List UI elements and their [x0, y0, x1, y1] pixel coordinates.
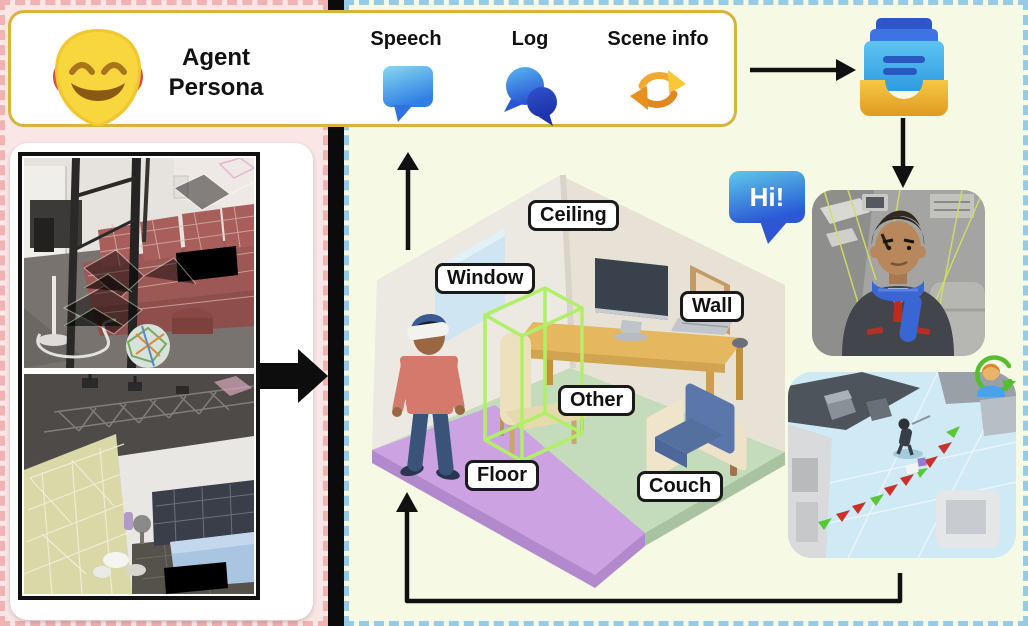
agent-persona-bar: Agent Persona Speech Log Scene info — [8, 10, 737, 127]
label-floor: Floor — [465, 460, 539, 491]
refresh-arrows-icon — [629, 61, 687, 119]
photo-room-scan-couch — [24, 158, 254, 368]
photo-room-scan-bedroom — [24, 374, 254, 594]
photo-frame — [18, 152, 260, 600]
arrow-photos-to-scene — [260, 346, 330, 408]
label-window: Window — [435, 263, 535, 294]
label-couch: Couch — [637, 471, 723, 502]
desk-mouse — [732, 338, 748, 348]
arrow-map-loop-to-room — [395, 492, 915, 612]
theater-mask-icon — [48, 26, 148, 126]
label-wall: Wall — [680, 291, 744, 322]
label-other: Other — [558, 385, 635, 416]
greeting-bubble: Hi! — [726, 168, 812, 248]
log-label: Log — [485, 28, 575, 51]
label-ceiling: Ceiling — [528, 200, 619, 231]
greeting-text: Hi! — [750, 182, 785, 212]
speech-label: Speech — [361, 28, 451, 51]
scene-info-label: Scene info — [598, 28, 718, 51]
archive-tray-icon — [852, 12, 956, 118]
persona-title: Agent Persona — [136, 43, 296, 103]
person-refresh-icon — [966, 350, 1016, 400]
arrow-bar-to-storage — [746, 56, 858, 84]
chat-bubbles-icon — [500, 63, 564, 127]
figure-canvas: Ceiling Window Wall Other Floor Couch — [0, 0, 1028, 626]
speech-bubble-icon — [379, 61, 437, 123]
arrow-storage-to-avatar — [885, 116, 921, 190]
arrow-room-to-bar — [390, 150, 426, 254]
avatar-portrait — [812, 190, 985, 356]
